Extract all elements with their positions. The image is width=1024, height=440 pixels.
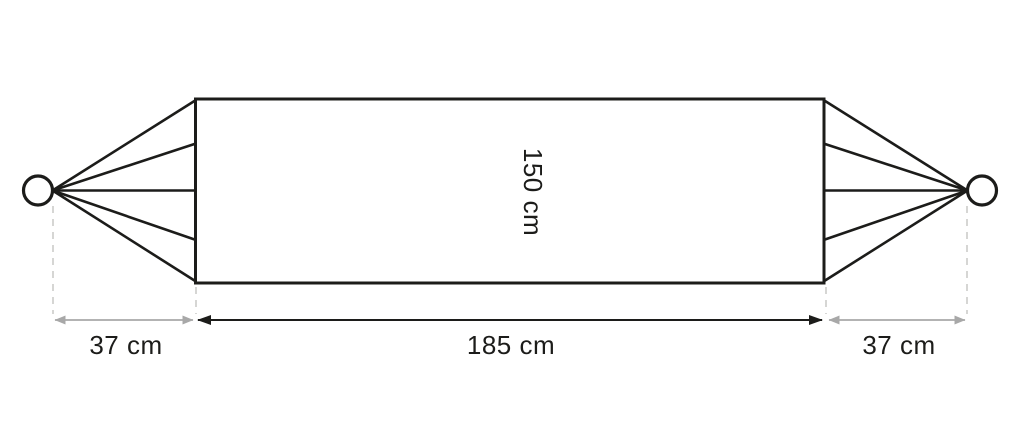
bed-width-label: 150 cm (518, 148, 548, 236)
right-cord-upper (824, 144, 968, 191)
right-suspension-cords (824, 100, 968, 282)
hammock-outline-layer (24, 99, 997, 283)
left-cord-lower (53, 191, 197, 241)
right-suspension-ring (968, 176, 997, 205)
left-suspension-ring (24, 176, 53, 205)
left-cord-upper (53, 144, 197, 191)
right-suspension-label: 37 cm (862, 330, 935, 360)
left-suspension-label: 37 cm (89, 330, 162, 360)
left-cord-bottom (53, 191, 197, 282)
bed-length-label: 185 cm (467, 330, 555, 360)
hammock-dimension-diagram: 150 cm 185 cm 37 cm 37 cm (0, 0, 1024, 440)
right-cord-bottom (824, 191, 968, 282)
hammock-bed-outline (196, 99, 825, 283)
right-cord-top (824, 100, 968, 191)
left-cord-top (53, 100, 197, 191)
left-suspension-cords (53, 100, 197, 282)
right-cord-lower (824, 191, 968, 241)
